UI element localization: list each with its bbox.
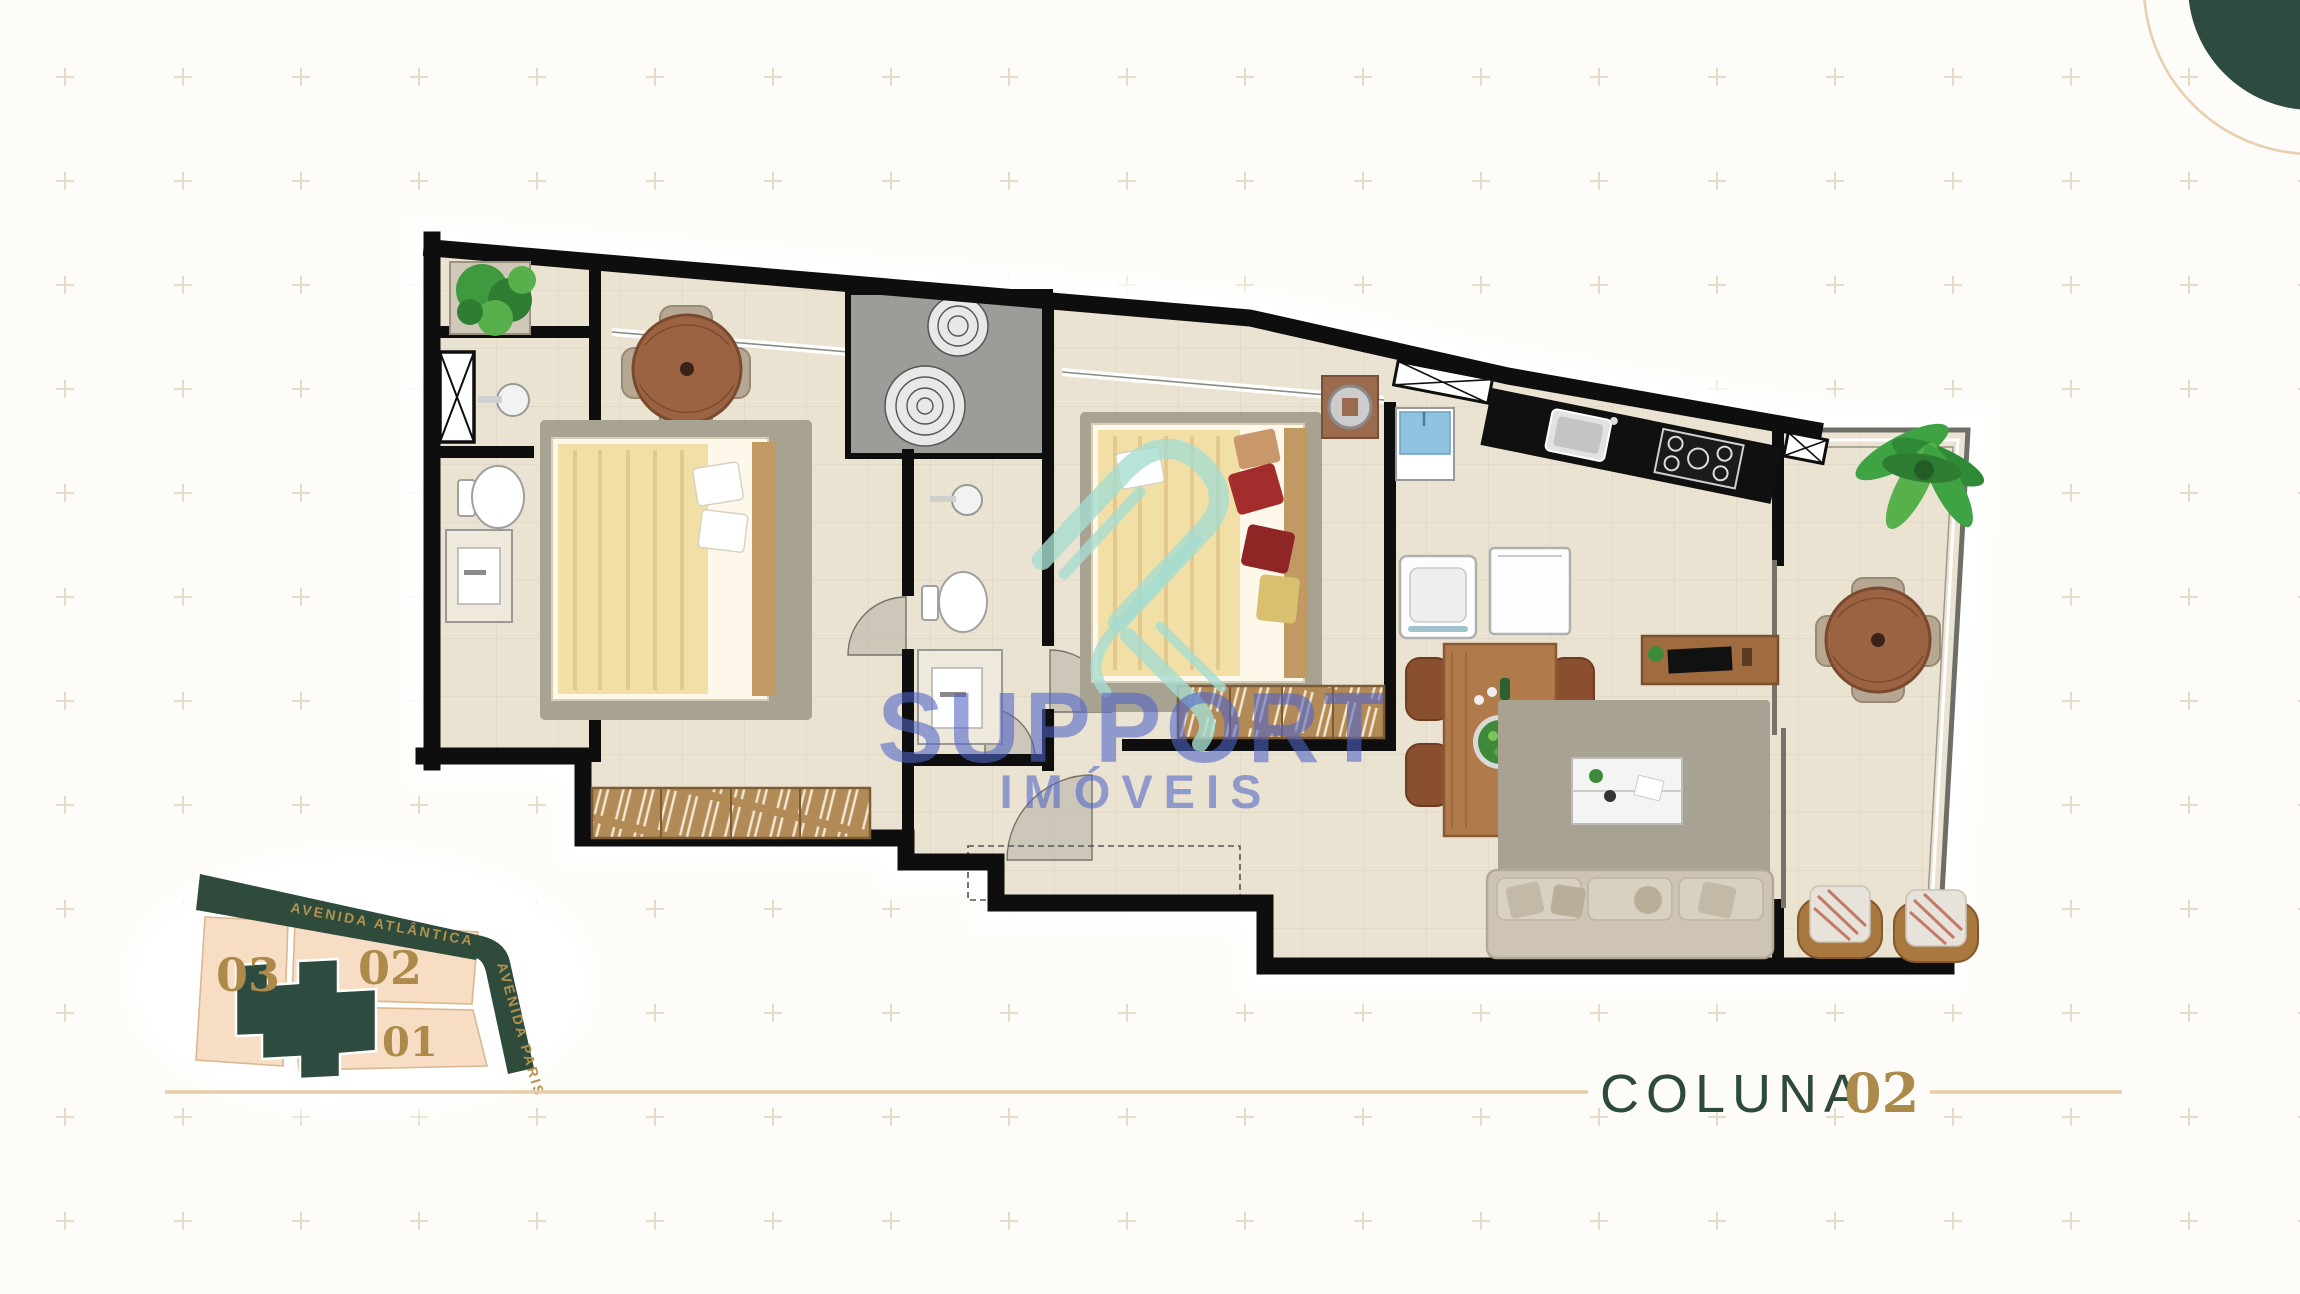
- shaft-icon: [440, 352, 474, 442]
- title-number: 02: [1844, 1061, 1919, 1125]
- pedestal-sink-icon: [952, 485, 982, 515]
- poster-canvas: SUPPORT IMÓVEIS AVENIDA ATLÂNTICA AVENID…: [0, 0, 2300, 1294]
- wardrobe: [592, 788, 870, 838]
- vanity-icon: [446, 530, 512, 622]
- watermark-subtitle: IMÓVEIS: [1000, 765, 1273, 818]
- laundry-tank-icon: [1396, 408, 1454, 480]
- lot-number-01: 01: [382, 1019, 438, 1066]
- double-bed: [552, 438, 776, 700]
- tv-console-icon: [1642, 636, 1778, 684]
- title-label: COLUNA: [1600, 1064, 1867, 1124]
- lot-number-03: 03: [216, 948, 280, 1002]
- potted-plant: [450, 262, 536, 336]
- lounge-chair: [1798, 886, 1882, 958]
- stair-core: [848, 292, 1050, 456]
- dishwasher-icon: [1490, 548, 1570, 634]
- lounge-chair: [1894, 890, 1978, 962]
- nightstand-icon: [1322, 376, 1378, 438]
- site-map: AVENIDA ATLÂNTICA AVENIDA PARIS 03 02 01: [125, 847, 595, 1117]
- sofa: [1487, 870, 1773, 958]
- washing-machine-icon: [1400, 556, 1476, 638]
- lot-number-02: 02: [358, 941, 422, 995]
- floorplan-poster: SUPPORT IMÓVEIS AVENIDA ATLÂNTICA AVENID…: [0, 0, 2300, 1294]
- coffee-table-icon: [1572, 758, 1682, 824]
